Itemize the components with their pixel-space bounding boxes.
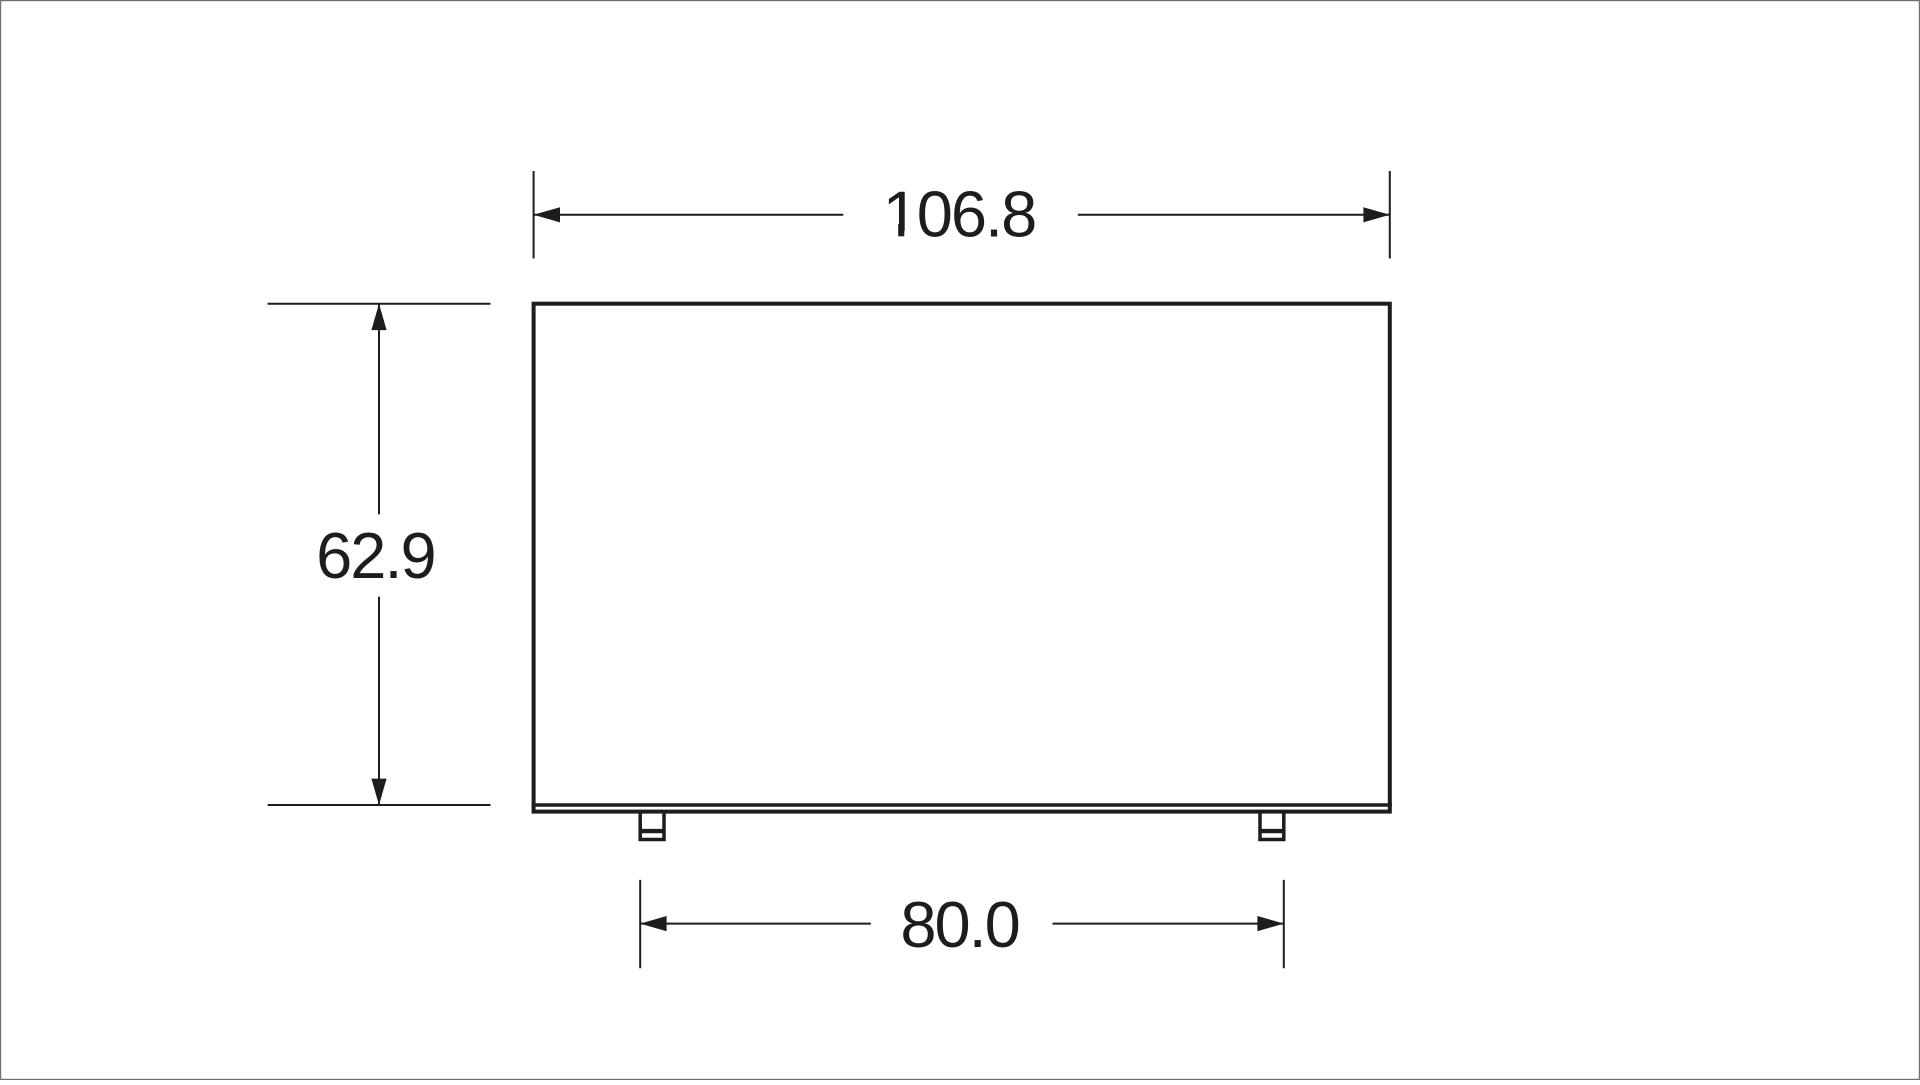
svg-text:62.9: 62.9 [316,519,435,592]
svg-text:80.0: 80.0 [900,888,1019,961]
svg-text:106.8: 106.8 [883,177,1036,250]
